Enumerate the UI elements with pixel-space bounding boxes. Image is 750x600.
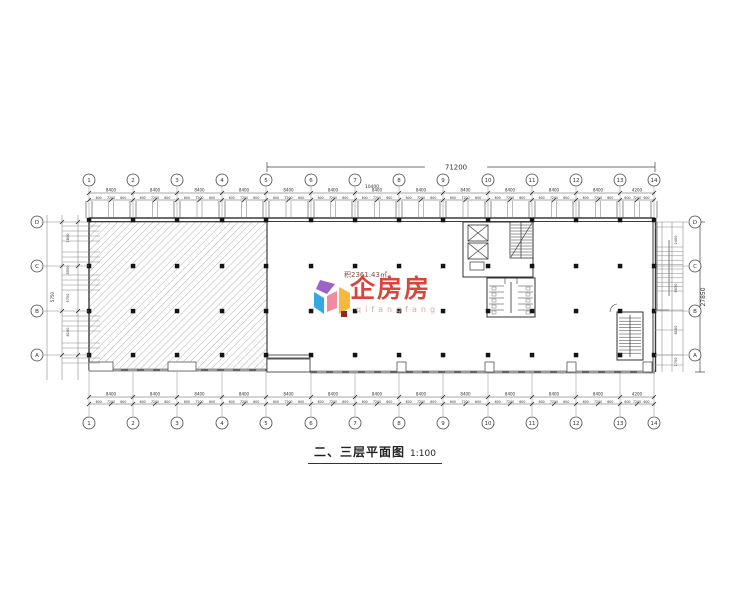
dim-text: 600 xyxy=(209,400,215,404)
dim-text: 600 xyxy=(563,400,569,404)
row-bubble-left-C-label: C xyxy=(35,264,39,270)
right-dim-value: 2400 xyxy=(674,236,678,245)
dim-text: 8400 xyxy=(549,188,560,193)
column-marker xyxy=(87,218,92,223)
column-marker xyxy=(264,353,269,358)
dim-text: 8400 xyxy=(194,188,205,193)
dim-text: 600 xyxy=(430,400,436,404)
dim-text: 8400 xyxy=(106,188,117,193)
right-dim-value: 8050 xyxy=(674,284,678,293)
column-marker xyxy=(131,353,136,358)
dim-text: 8400 xyxy=(194,392,205,397)
overall-height-label: 27850 xyxy=(700,287,707,306)
dim-text: 600 xyxy=(563,196,569,200)
column-marker xyxy=(175,218,180,223)
dim-text: 600 xyxy=(539,400,545,404)
dim-text: 7200 xyxy=(151,196,159,200)
dim-text: 8400 xyxy=(283,392,294,397)
grid-bubble-bottom-2-label: 2 xyxy=(131,421,135,427)
column-marker xyxy=(353,218,358,223)
dim-text: 8400 xyxy=(283,188,294,193)
column-marker xyxy=(574,264,579,269)
column-marker xyxy=(486,218,491,223)
grid-bubble-top-1-label: 1 xyxy=(87,178,91,184)
dim-text: 600 xyxy=(406,196,412,200)
dim-text: 7200 xyxy=(550,400,558,404)
column-marker xyxy=(441,218,446,223)
dim-text: 7200 xyxy=(373,400,381,404)
grid-bubble-top-3-label: 3 xyxy=(175,178,179,184)
dim-text: 600 xyxy=(164,196,170,200)
dim-text: 600 xyxy=(140,196,146,200)
toilet-fixture-icon xyxy=(526,299,530,302)
row-bubble-left-D-label: D xyxy=(35,220,39,226)
toilet-fixture-icon xyxy=(526,305,530,308)
logo-purple-piece xyxy=(316,280,335,294)
toilet-fixture-icon xyxy=(492,311,496,314)
dim-text: 600 xyxy=(475,400,481,404)
door-swing-icon xyxy=(610,304,617,312)
left-dim-value: 8050 xyxy=(66,266,70,275)
grid-bubble-top-2-label: 2 xyxy=(131,178,135,184)
grid-bubble-bottom-1-label: 1 xyxy=(87,421,91,427)
row-bubble-right-A-label: A xyxy=(693,353,697,359)
dim-text: 600 xyxy=(96,400,102,404)
dim-text: 7200 xyxy=(461,400,469,404)
dim-text: 600 xyxy=(386,196,392,200)
logo-yellow-piece xyxy=(339,287,350,314)
dim-text: 8400 xyxy=(150,392,161,397)
column-marker xyxy=(441,353,446,358)
grid-bubble-top-8-label: 8 xyxy=(397,178,401,184)
toilet-fixture-icon xyxy=(492,299,496,302)
toilet-fixture-icon xyxy=(526,311,530,314)
column-marker xyxy=(574,309,579,314)
dim-text: 8400 xyxy=(593,392,604,397)
left-dim-value: 1800 xyxy=(66,234,70,243)
column-marker xyxy=(397,218,402,223)
grid-bubble-top-4-label: 4 xyxy=(220,178,224,184)
dim-text: 4200 xyxy=(632,392,643,397)
column-marker xyxy=(530,264,535,269)
column-marker xyxy=(397,353,402,358)
dim-text: 600 xyxy=(519,400,525,404)
dim-text: 600 xyxy=(120,400,126,404)
dim-text: 600 xyxy=(495,400,501,404)
dim-text: 7200 xyxy=(329,400,337,404)
wall-notch xyxy=(567,362,576,372)
dim-text: 8400 xyxy=(239,392,250,397)
dim-text: 600 xyxy=(140,400,146,404)
column-marker xyxy=(309,353,314,358)
grid-bubble-bottom-8-label: 8 xyxy=(397,421,401,427)
column-marker xyxy=(309,218,314,223)
dim-text: 7200 xyxy=(107,196,115,200)
dim-text: 8400 xyxy=(460,188,471,193)
column-marker xyxy=(486,264,491,269)
entrance-porch xyxy=(267,355,310,372)
dim-text: 600 xyxy=(229,400,235,404)
column-marker xyxy=(220,309,225,314)
dim-text: 7200 xyxy=(550,196,558,200)
grid-bubble-top-11-label: 11 xyxy=(529,178,536,184)
grid-bubble-bottom-14-label: 14 xyxy=(651,421,658,427)
drawing-title-bar: 二、三层平面图1:100 xyxy=(0,441,750,464)
grid-bubble-bottom-11-label: 11 xyxy=(529,421,536,427)
dim-text: 8400 xyxy=(106,392,117,397)
column-marker xyxy=(309,264,314,269)
dim-text: 600 xyxy=(519,196,525,200)
grid-bubble-top-9-label: 9 xyxy=(441,178,445,184)
dim-text: 600 xyxy=(430,196,436,200)
dim-text: 600 xyxy=(318,400,324,404)
column-marker xyxy=(574,218,579,223)
column-marker xyxy=(175,264,180,269)
grid-bubble-top-12-label: 12 xyxy=(573,178,580,184)
dim-text: 600 xyxy=(450,196,456,200)
wall-notch xyxy=(485,362,494,372)
right-dim-value: 1750 xyxy=(674,358,678,367)
floorplan-sheet: 71200 10400 27850 5750 11223344556677889… xyxy=(0,0,750,600)
grid-bubble-top-10-label: 10 xyxy=(485,178,492,184)
dim-text: 600 xyxy=(184,196,190,200)
dim-text: 8400 xyxy=(593,188,604,193)
dim-text: 8400 xyxy=(416,392,427,397)
dim-text: 7200 xyxy=(594,196,602,200)
dim-text: 600 xyxy=(406,400,412,404)
dim-text: 600 xyxy=(229,196,235,200)
dim-text: 600 xyxy=(209,196,215,200)
dim-text: 7200 xyxy=(594,400,602,404)
grid-bubble-bottom-12-label: 12 xyxy=(573,421,580,427)
grid-bubble-top-7-label: 7 xyxy=(353,178,357,184)
dim-text: 7200 xyxy=(195,196,203,200)
dim-text: 600 xyxy=(96,196,102,200)
dim-text: 7200 xyxy=(329,196,337,200)
right-dim-value: 8100 xyxy=(674,326,678,335)
dim-text: 600 xyxy=(298,400,304,404)
column-marker xyxy=(220,264,225,269)
dim-text: 7200 xyxy=(195,400,203,404)
dim-text: 8400 xyxy=(328,392,339,397)
watermark: 积2361.43㎡ 企房房 qifangfang xyxy=(314,268,444,326)
dim-text: 8400 xyxy=(416,188,427,193)
grid-bubble-top-5-label: 5 xyxy=(264,178,268,184)
row-bubble-right-D-label: D xyxy=(693,220,697,226)
row-bubble-left-A-label: A xyxy=(35,353,39,359)
column-marker xyxy=(131,264,136,269)
dim-text: 600 xyxy=(342,400,348,404)
dim-text: 600 xyxy=(475,196,481,200)
logo-red-square xyxy=(341,311,347,317)
brand-subtext: qifangfang xyxy=(356,305,439,314)
hatched-region xyxy=(89,222,267,370)
left-dim-value: 8100 xyxy=(66,328,70,337)
column-marker xyxy=(618,264,623,269)
dim-text: 600 xyxy=(583,196,589,200)
dim-text: 600 xyxy=(386,400,392,404)
wall-notch xyxy=(397,362,406,372)
dim-text: 7200 xyxy=(107,400,115,404)
column-marker xyxy=(652,218,657,223)
dim-text: 600 xyxy=(624,400,630,404)
toilet-fixture-icon xyxy=(492,287,496,290)
dim-text: 600 xyxy=(450,400,456,404)
toilet-fixture-icon xyxy=(492,293,496,296)
column-marker xyxy=(618,218,623,223)
grid-bubble-top-6-label: 6 xyxy=(309,178,313,184)
grid-bubble-bottom-13-label: 13 xyxy=(617,421,624,427)
dim-text: 7200 xyxy=(240,196,248,200)
column-marker xyxy=(618,309,623,314)
dim-text: 8400 xyxy=(239,188,250,193)
dim-text: 600 xyxy=(607,400,613,404)
logo-blue-piece xyxy=(314,292,324,314)
dim-text: 600 xyxy=(362,400,368,404)
grid-bubble-bottom-9-label: 9 xyxy=(441,421,445,427)
column-marker xyxy=(175,309,180,314)
dim-text: 8400 xyxy=(505,188,516,193)
toilet-fixture-icon xyxy=(526,293,530,296)
dim-text: 600 xyxy=(607,196,613,200)
toilet-fixture-icon xyxy=(492,305,496,308)
column-marker xyxy=(530,218,535,223)
grid-bubble-bottom-7-label: 7 xyxy=(353,421,357,427)
grid-bubble-bottom-6-label: 6 xyxy=(309,421,313,427)
dim-text: 7200 xyxy=(284,400,292,404)
qifangfang-logo-icon xyxy=(314,278,352,320)
shaft-vestibule xyxy=(470,262,484,270)
dim-text: 7200 xyxy=(284,196,292,200)
dim-text: 600 xyxy=(253,400,259,404)
dim-text: 7200 xyxy=(417,196,425,200)
core-outline xyxy=(463,222,533,277)
row-bubble-left-B-label: B xyxy=(35,309,39,315)
dim-text: 600 xyxy=(539,196,545,200)
column-marker xyxy=(353,353,358,358)
toilet-fixture-icon xyxy=(526,287,530,290)
grid-bubble-bottom-4-label: 4 xyxy=(220,421,224,427)
hatched-area xyxy=(89,222,267,370)
dim-text: 600 xyxy=(342,196,348,200)
column-marker xyxy=(220,353,225,358)
dim-text: 7200 xyxy=(151,400,159,404)
column-marker xyxy=(574,353,579,358)
dim-text: 4200 xyxy=(632,188,643,193)
dim-text: 7200 xyxy=(506,400,514,404)
dim-text: 7200 xyxy=(506,196,514,200)
stair-right xyxy=(610,304,643,360)
left-dim-value: 5750 xyxy=(66,294,70,303)
dim-text: 600 xyxy=(643,400,649,404)
dim-text: 600 xyxy=(164,400,170,404)
entry-step xyxy=(168,362,196,371)
grid-bubble-bottom-3-label: 3 xyxy=(175,421,179,427)
elevator-core xyxy=(463,222,533,277)
grid-bubble-bottom-10-label: 10 xyxy=(485,421,492,427)
column-marker xyxy=(264,218,269,223)
dim-text: 600 xyxy=(624,196,630,200)
brand-name: 企房房 xyxy=(350,276,431,301)
drawing-title-text: 二、三层平面图 xyxy=(314,445,405,459)
dim-text: 8400 xyxy=(460,392,471,397)
dim-text: 600 xyxy=(495,196,501,200)
column-marker xyxy=(264,309,269,314)
column-marker xyxy=(486,309,491,314)
dim-text: 7200 xyxy=(461,196,469,200)
dim-text: 7200 xyxy=(373,196,381,200)
column-marker xyxy=(309,309,314,314)
dim-text: 8400 xyxy=(372,392,383,397)
column-marker xyxy=(131,218,136,223)
dim-text: 8400 xyxy=(549,392,560,397)
dim-text: 600 xyxy=(583,400,589,404)
grid-bubble-top-14-label: 14 xyxy=(651,178,658,184)
dim-text: 600 xyxy=(318,196,324,200)
overall-width-label: 71200 xyxy=(445,164,467,172)
dim-text: 7200 xyxy=(240,400,248,404)
dim-text: 600 xyxy=(120,196,126,200)
dim-text: 600 xyxy=(253,196,259,200)
dim-text: 600 xyxy=(298,196,304,200)
wall-notch xyxy=(643,362,652,372)
column-marker xyxy=(175,353,180,358)
dim-text: 7200 xyxy=(633,400,641,404)
row-bubble-right-B-label: B xyxy=(693,309,697,315)
column-marker xyxy=(530,309,535,314)
column-marker xyxy=(530,353,535,358)
grid-bubble-top-13-label: 13 xyxy=(617,178,624,184)
dim-text: 8400 xyxy=(150,188,161,193)
column-marker xyxy=(486,353,491,358)
column-marker xyxy=(264,264,269,269)
dim-text: 600 xyxy=(643,196,649,200)
dim-text: 8400 xyxy=(372,188,383,193)
dim-text: 600 xyxy=(273,196,279,200)
drawing-scale: 1:100 xyxy=(410,449,436,459)
dim-text: 8400 xyxy=(328,188,339,193)
entry-step xyxy=(89,362,113,371)
dim-text: 600 xyxy=(184,400,190,404)
drawing-title: 二、三层平面图1:100 xyxy=(308,441,442,464)
dim-text: 600 xyxy=(273,400,279,404)
left-height-label: 5750 xyxy=(50,291,55,302)
dim-text: 7200 xyxy=(633,196,641,200)
column-marker xyxy=(220,218,225,223)
dim-text: 7200 xyxy=(417,400,425,404)
column-marker xyxy=(618,353,623,358)
column-marker xyxy=(131,309,136,314)
dim-text: 600 xyxy=(362,196,368,200)
grid-bubble-bottom-5-label: 5 xyxy=(264,421,268,427)
row-bubble-right-C-label: C xyxy=(693,264,697,270)
logo-pink-piece xyxy=(327,291,337,312)
dim-text: 8400 xyxy=(505,392,516,397)
